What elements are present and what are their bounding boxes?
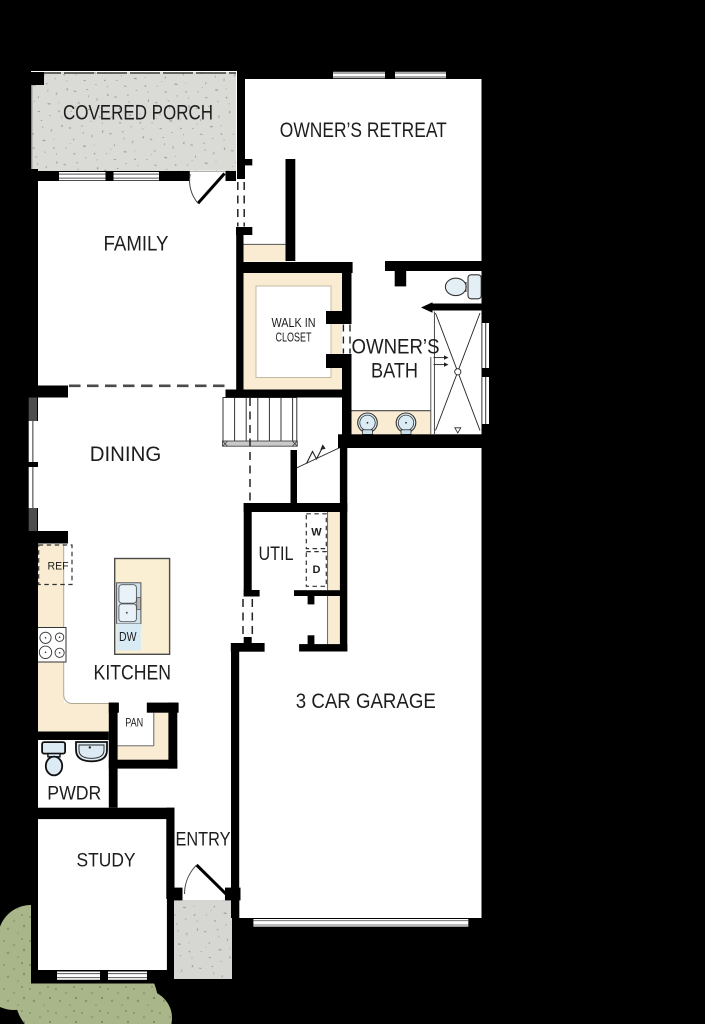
svg-text:OWNER’S: OWNER’S	[352, 336, 440, 359]
svg-text:REF: REF	[48, 560, 69, 572]
svg-text:KITCHEN: KITCHEN	[94, 662, 172, 685]
svg-text:UTIL: UTIL	[259, 544, 294, 565]
svg-text:WALK IN: WALK IN	[272, 316, 316, 330]
svg-text:DW: DW	[119, 630, 137, 644]
svg-text:FAMILY: FAMILY	[104, 233, 169, 256]
svg-text:CLOSET: CLOSET	[276, 331, 312, 345]
svg-text:PAN: PAN	[125, 718, 143, 730]
svg-text:STUDY: STUDY	[77, 850, 136, 872]
svg-text:W: W	[311, 527, 322, 539]
svg-text:D: D	[313, 564, 321, 576]
svg-text:COVERED PORCH: COVERED PORCH	[63, 102, 213, 125]
svg-text:3 CAR GARAGE: 3 CAR GARAGE	[296, 690, 436, 713]
svg-text:ENTRY: ENTRY	[176, 830, 231, 851]
svg-text:OWNER’S RETREAT: OWNER’S RETREAT	[280, 119, 447, 142]
svg-text:BATH: BATH	[371, 360, 418, 383]
svg-text:DINING: DINING	[90, 443, 162, 466]
svg-text:PWDR: PWDR	[47, 784, 101, 805]
